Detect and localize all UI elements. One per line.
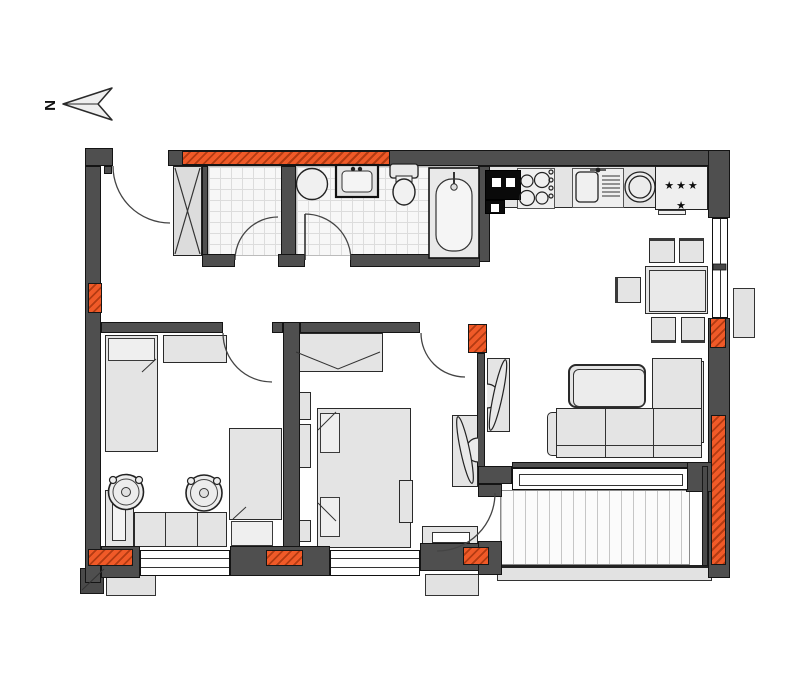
wall-bath-south-b bbox=[278, 254, 305, 267]
wall-left bbox=[85, 166, 101, 583]
wall-bath-south-c bbox=[350, 254, 480, 267]
wc-floor bbox=[208, 166, 282, 256]
north-label: N bbox=[41, 100, 58, 111]
window-dining bbox=[712, 218, 728, 318]
wall-left-cap bbox=[85, 148, 113, 166]
fridge-star-rating: ★★★ ★ bbox=[656, 176, 708, 196]
highlight-corner-sw bbox=[88, 549, 133, 566]
ventilation-shaft bbox=[173, 166, 202, 256]
highlight-right-upper bbox=[710, 318, 726, 348]
bedroom-unit bbox=[399, 480, 413, 523]
wall-master-living bbox=[477, 353, 485, 467]
oven-lower bbox=[485, 200, 505, 214]
highlight-right-lower bbox=[711, 415, 726, 565]
wall-shaft-wc bbox=[202, 166, 208, 256]
floor-plan: ★★★ ★ bbox=[0, 0, 812, 680]
sofa-corner bbox=[652, 358, 702, 410]
plant-base bbox=[487, 358, 510, 432]
bed-pillow bbox=[320, 497, 340, 537]
master-door-arc bbox=[421, 333, 465, 377]
bathroom-floor bbox=[296, 166, 478, 256]
desk bbox=[134, 512, 227, 547]
ac-unit bbox=[425, 574, 479, 596]
coffee-table bbox=[568, 364, 646, 408]
highlight-pillar-master bbox=[468, 324, 487, 353]
oven bbox=[485, 170, 521, 200]
wall-stub bbox=[272, 322, 283, 333]
sofa-seat bbox=[556, 408, 702, 458]
door-jamb bbox=[104, 166, 112, 174]
wardrobe-master bbox=[292, 333, 383, 372]
ac-unit bbox=[733, 288, 755, 338]
wall-bath-south-a bbox=[202, 254, 235, 267]
dining-chair bbox=[651, 317, 676, 343]
dining-chair bbox=[615, 277, 641, 303]
plant-pot bbox=[186, 475, 222, 511]
highlight-wall-top bbox=[182, 151, 390, 165]
dining-chair bbox=[649, 238, 675, 263]
cooktop bbox=[517, 168, 555, 209]
entrance-door-arc bbox=[113, 166, 170, 223]
dining-chair bbox=[679, 238, 704, 263]
window-master bbox=[330, 550, 420, 576]
highlight-south-right bbox=[463, 547, 489, 565]
highlight-wall-left bbox=[88, 283, 102, 313]
terrace-deck bbox=[500, 490, 690, 565]
wall-wc-bath bbox=[281, 166, 296, 256]
wall-between-bedrooms bbox=[283, 322, 300, 548]
wall-right-top bbox=[708, 150, 730, 218]
window-terrace-door bbox=[512, 468, 688, 490]
kids-door-arc bbox=[223, 333, 272, 382]
wall-corner-block-a bbox=[478, 466, 512, 484]
plant-base bbox=[452, 415, 478, 487]
bed-pillow bbox=[320, 413, 340, 453]
north-arrow: N bbox=[41, 88, 112, 120]
single-bed bbox=[229, 428, 282, 520]
wall-master-north bbox=[300, 322, 420, 333]
bed-pillow bbox=[108, 338, 155, 361]
desk-return bbox=[105, 490, 134, 547]
terrace-parapet-inner bbox=[702, 466, 708, 566]
highlight-south-mid bbox=[266, 550, 303, 566]
wall-kidsroom-north bbox=[101, 322, 223, 333]
wall-corner-block-b bbox=[478, 484, 502, 497]
window-kids-room bbox=[140, 550, 230, 576]
bed-chest bbox=[231, 521, 273, 546]
dining-table bbox=[645, 266, 708, 314]
window-end-block bbox=[686, 462, 712, 492]
kitchen-sink-unit bbox=[572, 168, 624, 208]
kids-cabinet bbox=[163, 335, 227, 363]
dining-chair bbox=[681, 317, 705, 343]
sofa-armrest bbox=[547, 412, 557, 456]
terrace-sill bbox=[497, 565, 712, 581]
